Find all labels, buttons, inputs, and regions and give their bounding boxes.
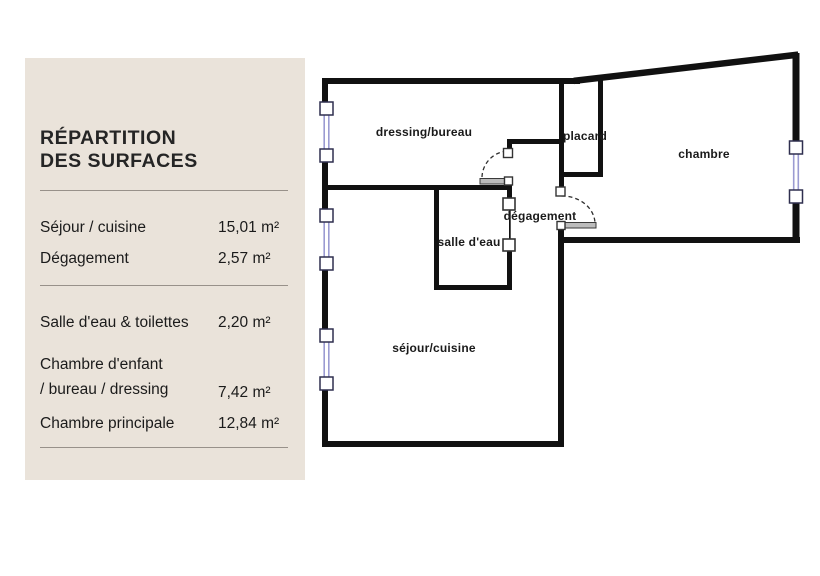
room-label-placard: placard [563,129,607,143]
wall-degagement-top [507,139,564,144]
wall-left-d [322,387,328,447]
wall-diagonal-top [577,55,795,81]
room-label-chambre: chambre [678,147,729,161]
wall-left-c [322,267,328,332]
window-sejour-upper [320,209,333,270]
door-dressing [480,149,513,186]
wall-placard-right [598,76,603,177]
wall-chambre-bottom [558,237,800,243]
wall-sejour-right [558,222,564,447]
wall-sejour-top [322,185,512,190]
window-chambre [790,141,803,203]
wall-bath-right-b [507,248,512,290]
room-label-dressing-bureau: dressing/bureau [376,125,472,139]
wall-sejour-bottom [322,441,564,447]
floor-plan [0,0,820,576]
room-label-sejour-cuisine: séjour/cuisine [392,341,476,355]
walls [322,53,800,447]
wall-right-lower [793,199,800,243]
room-label-salle-deau: salle d'eau [437,235,500,249]
wall-placard-bottom [559,172,603,177]
screen: RÉPARTITION DES SURFACES Séjour / cuisin… [0,0,820,576]
room-label-degagement: dégagement [504,209,577,223]
window-sejour-lower [320,329,333,390]
wall-right-upper [793,53,800,143]
wall-top [322,78,580,84]
wall-bath-bottom [434,285,512,290]
wall-left-a [322,78,328,105]
window-dressing [320,102,333,162]
